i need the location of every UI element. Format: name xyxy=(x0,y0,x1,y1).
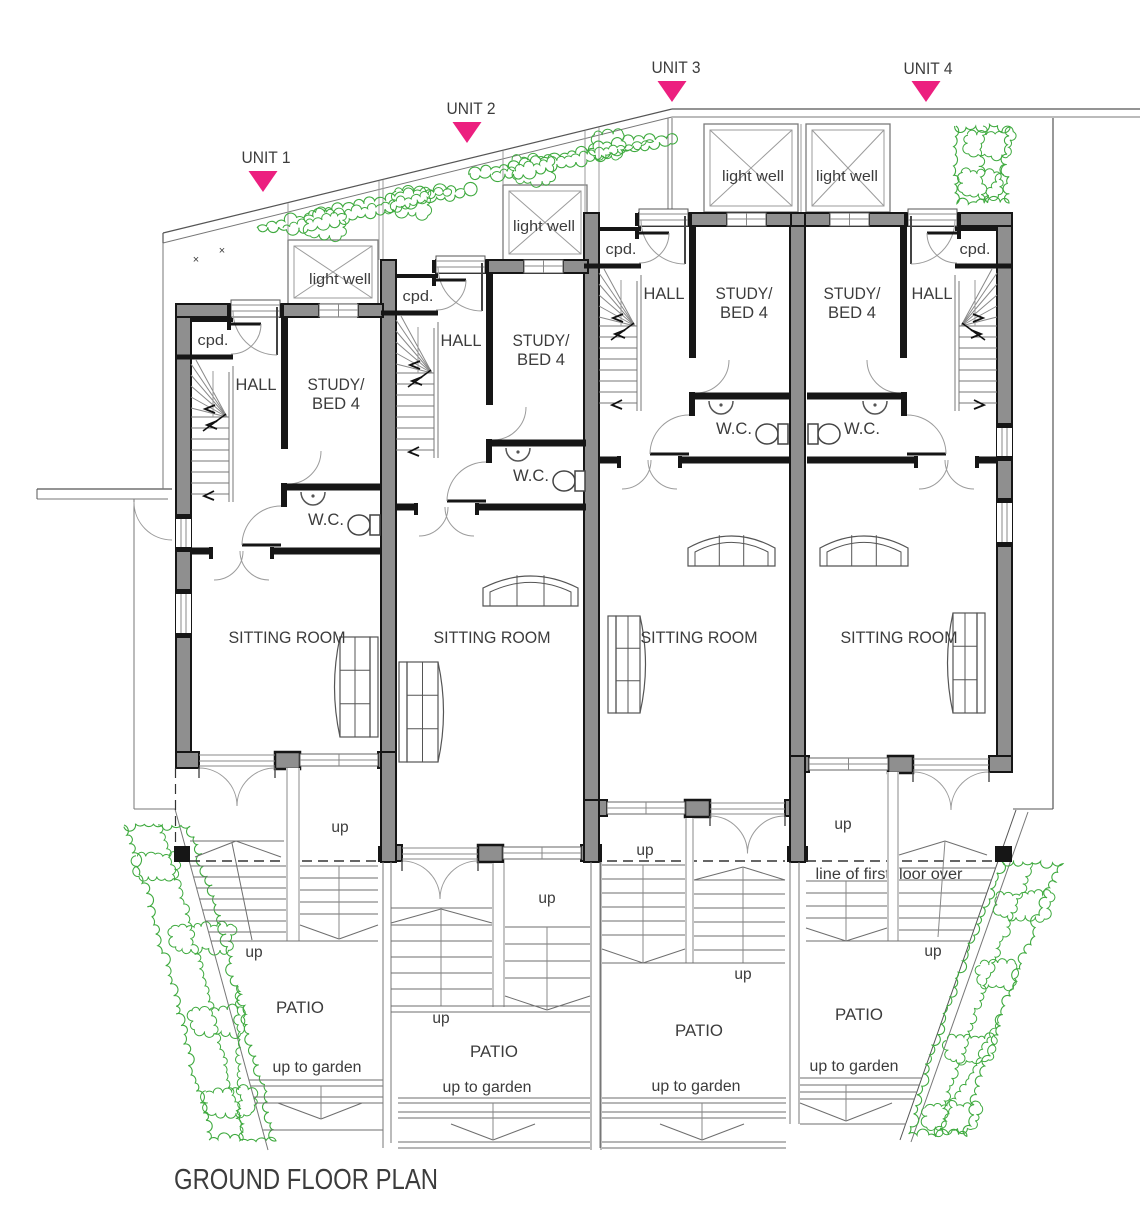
svg-text:PATIO: PATIO xyxy=(675,1021,723,1040)
svg-text:up to garden: up to garden xyxy=(810,1058,899,1075)
svg-text:light well: light well xyxy=(513,218,575,235)
svg-text:cpd.: cpd. xyxy=(606,241,637,258)
svg-text:up: up xyxy=(636,842,653,859)
svg-text:SITTING ROOM: SITTING ROOM xyxy=(229,629,346,647)
svg-text:up: up xyxy=(734,966,751,983)
svg-text:STUDY/: STUDY/ xyxy=(513,332,570,350)
svg-text:BED 4: BED 4 xyxy=(828,304,876,322)
svg-text:HALL: HALL xyxy=(441,332,482,350)
svg-text:W.C.: W.C. xyxy=(716,420,752,438)
svg-text:light well: light well xyxy=(722,168,784,185)
svg-text:cpd.: cpd. xyxy=(198,332,229,349)
svg-text:cpd.: cpd. xyxy=(960,241,991,258)
svg-text:up: up xyxy=(245,944,262,961)
svg-text:W.C.: W.C. xyxy=(513,467,549,485)
svg-text:PATIO: PATIO xyxy=(835,1005,883,1024)
svg-text:×: × xyxy=(219,245,225,257)
svg-text:UNIT 3: UNIT 3 xyxy=(652,58,701,77)
svg-text:HALL: HALL xyxy=(912,285,953,303)
svg-text:STUDY/: STUDY/ xyxy=(716,285,773,303)
svg-text:up to garden: up to garden xyxy=(652,1078,741,1095)
svg-text:SITTING ROOM: SITTING ROOM xyxy=(434,629,551,647)
svg-text:up to garden: up to garden xyxy=(273,1059,362,1076)
svg-text:light well: light well xyxy=(816,168,878,185)
svg-text:GROUND FLOOR PLAN: GROUND FLOOR PLAN xyxy=(174,1164,438,1196)
svg-text:SITTING ROOM: SITTING ROOM xyxy=(641,629,758,647)
svg-text:PATIO: PATIO xyxy=(276,998,324,1017)
svg-text:BED 4: BED 4 xyxy=(517,351,565,369)
svg-text:PATIO: PATIO xyxy=(470,1042,518,1061)
svg-text:HALL: HALL xyxy=(236,376,277,394)
svg-text:STUDY/: STUDY/ xyxy=(308,376,365,394)
svg-text:W.C.: W.C. xyxy=(308,511,344,529)
svg-text:up: up xyxy=(834,816,851,833)
svg-text:UNIT 1: UNIT 1 xyxy=(242,148,291,167)
svg-text:HALL: HALL xyxy=(644,285,685,303)
svg-text:STUDY/: STUDY/ xyxy=(824,285,881,303)
svg-text:BED 4: BED 4 xyxy=(312,395,360,413)
svg-text:UNIT 2: UNIT 2 xyxy=(447,99,496,118)
svg-text:UNIT 4: UNIT 4 xyxy=(904,59,953,78)
svg-text:BED 4: BED 4 xyxy=(720,304,768,322)
svg-text:up: up xyxy=(924,943,941,960)
svg-text:cpd.: cpd. xyxy=(403,288,434,305)
svg-text:light well: light well xyxy=(309,271,371,288)
svg-text:up: up xyxy=(331,819,348,836)
svg-text:W.C.: W.C. xyxy=(844,420,880,438)
svg-text:up: up xyxy=(432,1010,449,1027)
svg-text:up: up xyxy=(538,890,555,907)
svg-text:SITTING ROOM: SITTING ROOM xyxy=(841,629,958,647)
svg-text:up to garden: up to garden xyxy=(443,1079,532,1096)
svg-text:×: × xyxy=(193,254,199,266)
